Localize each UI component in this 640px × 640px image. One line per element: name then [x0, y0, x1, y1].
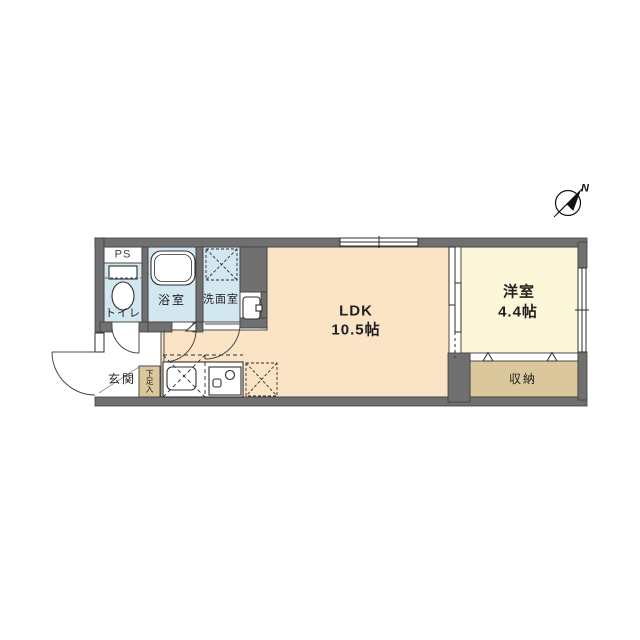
bathtub-icon [151, 251, 195, 285]
label-western-size: 4.4帖 [498, 305, 538, 320]
label-toilet: トイレ [105, 309, 141, 320]
wall-toilet-bottom-right [139, 322, 148, 332]
entrance-sidelite [95, 333, 104, 352]
label-ldk-size: 10.5帖 [331, 323, 380, 338]
wall-top-left [95, 238, 340, 247]
toilet-door-arc [112, 326, 139, 353]
wall-bottom [95, 397, 587, 406]
label-shoe-box: 下足入 [145, 369, 153, 393]
label-ldk-name: LDK [339, 304, 373, 319]
wall-toilet-bath [142, 247, 148, 322]
floorplan-drawing [0, 0, 640, 640]
wall-toilet-bottom-left [100, 322, 112, 332]
label-washroom: 洗面室 [203, 295, 239, 306]
room-washroom-floor [203, 247, 240, 322]
entrance-door-arc [52, 352, 95, 395]
bath-door-wedge-icon [186, 322, 196, 331]
compass-north-icon [554, 189, 582, 217]
label-bath: 浴室 [158, 294, 186, 306]
kitchen-sink-icon [167, 367, 196, 390]
wall-bath-washroom [196, 247, 203, 322]
wall-left [95, 238, 104, 332]
wall-duct-block [240, 247, 267, 292]
sliding-door-panel-upper [449, 247, 455, 305]
label-entrance: 玄関 [108, 373, 136, 385]
wall-partition-bottom [448, 353, 470, 402]
wall-right-lower [578, 352, 587, 400]
label-closet: 収納 [509, 373, 537, 385]
label-north: N [581, 184, 589, 195]
kitchen-stove-icon [209, 367, 241, 395]
wall-bath-bottom-left [148, 322, 172, 332]
washbasin-icon [243, 297, 262, 319]
label-ps: PS [115, 250, 132, 261]
floorplan-page: PS トイレ 浴室 洗面室 玄関 下足入 LDK 10.5帖 洋室 4.4帖 収… [0, 0, 640, 640]
wall-top-right [418, 238, 587, 247]
wall-right-upper [578, 242, 587, 268]
sliding-door-panel-lower [455, 283, 461, 332]
sliding-partition [449, 247, 461, 358]
label-western-name: 洋室 [503, 285, 535, 300]
